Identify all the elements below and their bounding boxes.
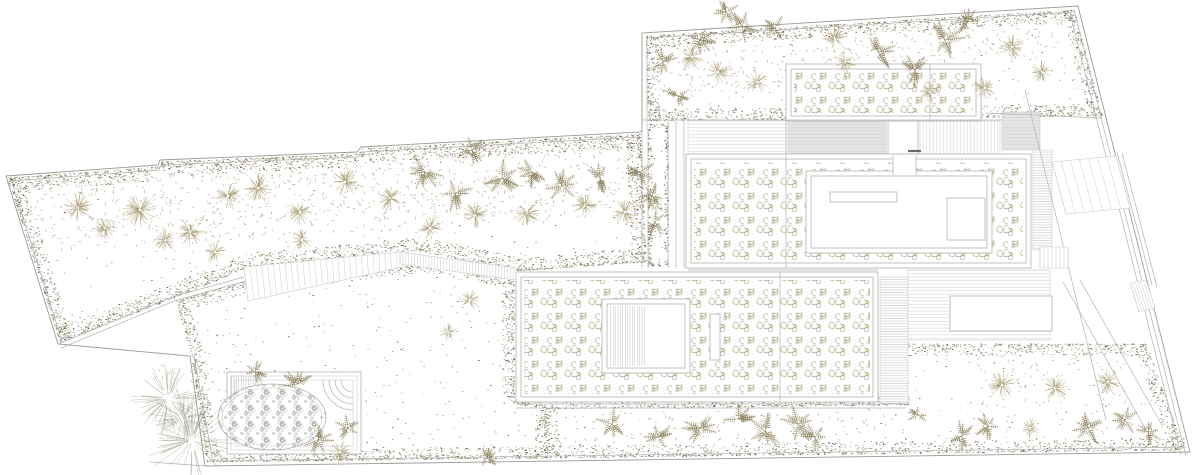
- fern-plant: [665, 89, 690, 106]
- boundary-inner-west: [11, 180, 62, 341]
- shrub: [746, 71, 768, 92]
- shrub: [205, 241, 225, 262]
- east-walk: [1033, 150, 1052, 250]
- stone-pond: [218, 372, 361, 454]
- side-steps: [1040, 247, 1068, 268]
- fern-plant: [650, 47, 677, 74]
- shrub: [707, 61, 730, 84]
- gate-steps: [1130, 280, 1155, 312]
- link-corridor: [888, 121, 918, 154]
- guest-skylight-slot: [710, 314, 720, 360]
- fern-plant: [780, 405, 811, 441]
- bottom-band-scrub: [574, 409, 893, 443]
- fern-plant: [1136, 422, 1160, 445]
- shrub: [418, 217, 442, 239]
- court-skylight: [830, 192, 897, 202]
- fern-plant: [596, 407, 623, 436]
- fern-plant: [976, 413, 998, 440]
- shrub: [1023, 419, 1039, 438]
- fern-plant: [950, 420, 973, 451]
- fern-plant: [681, 417, 716, 443]
- guest-patio-deck: [609, 306, 646, 366]
- fern-plant: [545, 169, 575, 199]
- shrub: [463, 203, 487, 228]
- fern-plant: [482, 448, 496, 466]
- upper-terrace-deck-east: [920, 121, 1000, 154]
- pool-pavilion-gravel: [794, 72, 973, 113]
- roof-notch: [893, 155, 916, 175]
- fern-plant: [1072, 412, 1102, 442]
- shrub: [333, 169, 358, 195]
- architectural-site-plan: [0, 0, 1200, 475]
- court-roof-hatch: [947, 198, 985, 240]
- fern-plant: [714, 1, 739, 23]
- shrub: [1044, 377, 1067, 399]
- side-deck: [880, 277, 908, 403]
- shrub: [822, 25, 847, 49]
- court-skylight: [830, 192, 897, 202]
- canopy-roof: [788, 121, 886, 154]
- guest-house-gravel: [524, 280, 870, 394]
- shrub: [572, 194, 598, 215]
- guest-skylight-slot: [710, 314, 720, 360]
- shrub: [440, 323, 457, 340]
- bottom-right-scrub: [964, 348, 1152, 407]
- garden-steps-fine: [400, 252, 516, 280]
- shrub: [63, 193, 93, 222]
- link-corridor: [888, 121, 918, 154]
- upper-terrace-deck: [688, 120, 786, 154]
- shrub: [292, 229, 312, 249]
- boundary-inner-east-2: [1070, 13, 1181, 455]
- fern-plant: [517, 159, 545, 189]
- shrub: [613, 200, 634, 223]
- fern-plant: [484, 159, 519, 191]
- shrub: [1032, 60, 1053, 82]
- roof-notch: [893, 155, 916, 175]
- shrub: [460, 290, 479, 309]
- left-garden-scrub: [23, 139, 643, 252]
- terrace-platform: [950, 296, 1052, 331]
- boundary-inner-east: [1074, 10, 1186, 456]
- site-plan-canvas: [0, 0, 1200, 475]
- utility-roof: [1002, 112, 1040, 150]
- fern-plant: [723, 404, 756, 423]
- fern-plant: [763, 16, 782, 40]
- shrub: [154, 228, 174, 251]
- shrub: [378, 187, 402, 210]
- shrub: [289, 203, 311, 225]
- shrub: [514, 203, 539, 226]
- fern-plant: [643, 425, 672, 447]
- fern-plant: [443, 180, 472, 211]
- fern-plant: [908, 407, 926, 421]
- fern-plant: [1112, 407, 1137, 434]
- garden-steps: [244, 250, 420, 301]
- court-roof-hatch: [947, 198, 985, 240]
- drive-steps: [1052, 156, 1130, 214]
- shrub: [244, 173, 273, 202]
- fern-plant: [648, 212, 664, 235]
- terrace-platform: [950, 296, 1052, 331]
